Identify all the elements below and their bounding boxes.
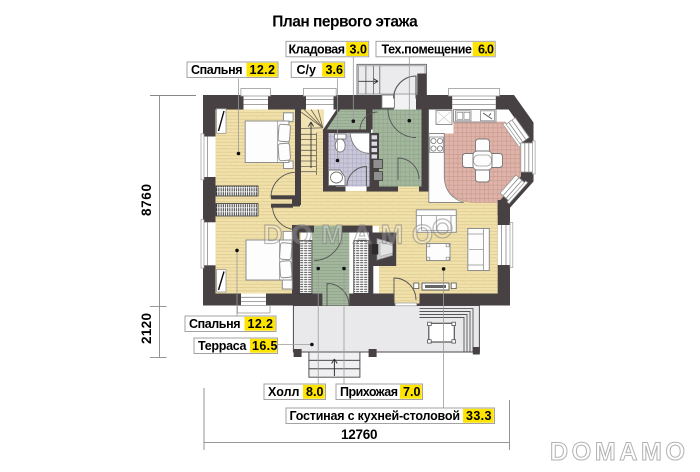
svg-text:План первого этажа: План первого этажа xyxy=(272,14,418,31)
svg-text:Спальня: Спальня xyxy=(189,317,241,331)
svg-text:16.5: 16.5 xyxy=(252,339,278,353)
svg-text:12.2: 12.2 xyxy=(250,63,276,77)
svg-text:С/у: С/у xyxy=(297,63,317,77)
svg-text:Спальня: Спальня xyxy=(191,63,243,77)
svg-text:8760: 8760 xyxy=(139,184,154,216)
svg-text:Прихожая: Прихожая xyxy=(340,385,398,399)
svg-text:Терраса: Терраса xyxy=(198,339,248,353)
svg-text:6.0: 6.0 xyxy=(478,42,494,56)
svg-text:33.3: 33.3 xyxy=(466,409,492,423)
svg-text:Гостиная с кухней-столовой: Гостиная с кухней-столовой xyxy=(290,409,461,423)
svg-text:Холл: Холл xyxy=(268,385,300,399)
svg-text:Кладовая: Кладовая xyxy=(289,42,346,56)
svg-text:3.6: 3.6 xyxy=(326,63,344,77)
svg-text:12760: 12760 xyxy=(341,427,378,442)
svg-text:12.2: 12.2 xyxy=(248,317,274,331)
svg-text:2120: 2120 xyxy=(139,313,154,344)
svg-text:7.0: 7.0 xyxy=(403,385,421,399)
svg-text:8.0: 8.0 xyxy=(306,385,324,399)
svg-text:3.0: 3.0 xyxy=(350,42,368,56)
svg-text:Тех.помещение: Тех.помещение xyxy=(382,42,473,56)
